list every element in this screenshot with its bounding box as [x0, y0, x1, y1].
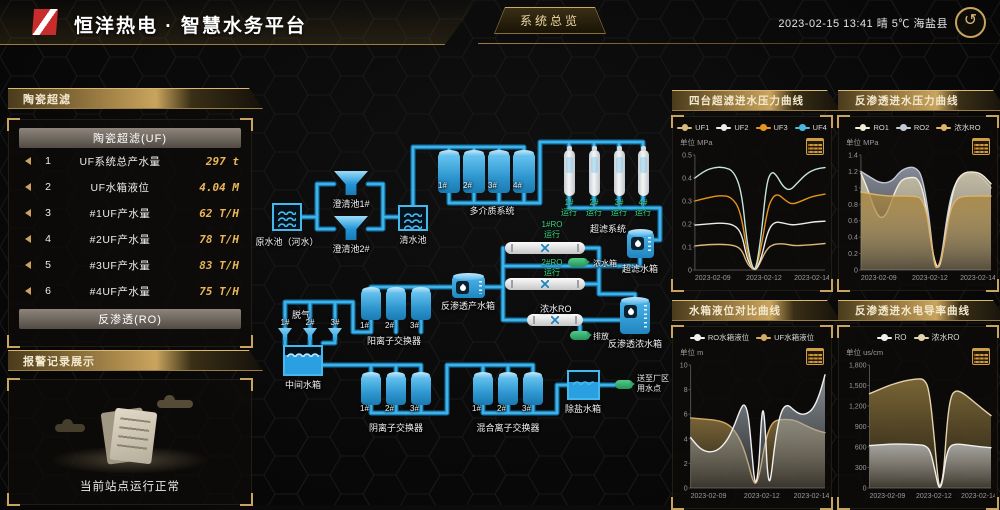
svg-text:0.8: 0.8	[848, 202, 858, 209]
svg-text:0.4: 0.4	[682, 176, 692, 183]
svg-text:0.2: 0.2	[848, 251, 858, 258]
svg-text:0.2: 0.2	[682, 222, 692, 229]
uf-water-tank	[627, 232, 654, 258]
alarm-box: 当前站点运行正常	[8, 379, 252, 505]
chart-plot: 10864202023-02-092023-02-122023-02-14	[675, 345, 829, 501]
chart-title: 反渗透进水压力曲线	[838, 90, 1000, 111]
raw-water-pool	[272, 203, 302, 231]
chart-legend: RO1RO2浓水RO	[841, 120, 995, 135]
svg-text:600: 600	[855, 445, 867, 452]
discharge-badge	[570, 331, 590, 340]
svg-text:2023-02-09: 2023-02-09	[691, 493, 727, 500]
anion-exchanger-1	[361, 375, 381, 405]
uf-panel-header: 陶瓷超滤	[8, 88, 263, 109]
svg-text:10: 10	[680, 363, 688, 370]
ro-section-title: 反渗透(RO)	[19, 309, 241, 329]
process-flow-diagram: 原水池（河水） 澄清池1# 澄清池2# 清水池 1# 2# 3# 4# 多介质系…	[255, 80, 675, 505]
anion-unit-label: 1#	[360, 404, 369, 413]
chart-box: RO1RO2浓水RO 单位 MPa 1.41.210.80.60.40.2020…	[838, 116, 998, 291]
location-text: 海盐县	[914, 18, 949, 30]
svg-text:0: 0	[688, 268, 692, 275]
legend-item: UF2	[716, 123, 748, 132]
alarm-panel: 报警记录展示 当前站点运行正常	[8, 350, 252, 505]
svg-text:2: 2	[684, 461, 688, 468]
system-overview-button[interactable]: 系统总览	[494, 7, 606, 34]
multimedia-system-label: 多介质系统	[469, 204, 514, 217]
row-value: 4.04 M	[179, 181, 241, 194]
calendar-icon[interactable]	[806, 138, 824, 155]
alarm-status-text: 当前站点运行正常	[9, 478, 251, 494]
cation-label: 阳离子交换器	[367, 334, 421, 347]
svg-text:0.6: 0.6	[848, 218, 858, 225]
degas-unit-label: 3#	[331, 318, 340, 327]
row-name: #1UF产水量	[61, 206, 179, 221]
uf-water-tank-label: 超滤水箱	[622, 262, 658, 275]
chart-unit-label: 单位 MPa	[846, 137, 879, 148]
svg-text:2023-02-12: 2023-02-12	[744, 493, 780, 500]
uf-panel: 陶瓷超滤 陶瓷超滤(UF) 1UF系统总产水量297 t2UF水箱液位4.04 …	[8, 88, 252, 347]
row-value: 62 T/H	[179, 207, 241, 220]
row-value: 78 T/H	[179, 233, 241, 246]
row-name: #2UF产水量	[61, 232, 179, 247]
chart-plot: 1,8001,5001,20090060030002023-02-092023-…	[841, 345, 995, 501]
header-gold-line	[478, 43, 1000, 44]
cation-unit-label: 2#	[385, 321, 394, 330]
demin-water-tank-label: 除盐水箱	[565, 402, 601, 415]
uf-table-title: 陶瓷超滤(UF)	[19, 128, 241, 148]
row-index: 6	[35, 285, 61, 297]
row-bullet-icon	[21, 183, 31, 191]
row-bullet-icon	[21, 287, 31, 295]
document-list-icon	[109, 408, 157, 465]
svg-text:0.1: 0.1	[682, 245, 692, 252]
discharge-badge-label: 排放	[593, 331, 609, 342]
clarifier-1-label: 澄清池1#	[332, 197, 369, 210]
mixed-exchanger-1	[473, 375, 493, 405]
row-name: #4UF产水量	[61, 284, 179, 299]
brand-logo-icon	[32, 9, 58, 35]
svg-text:1.4: 1.4	[848, 153, 858, 160]
uf-unit-status: 1# 运行	[560, 198, 578, 217]
legend-item: RO水箱液位	[690, 332, 749, 343]
degas-unit-label: 1#	[281, 318, 290, 327]
row-name: UF系统总产水量	[61, 154, 179, 169]
uf-unit-status: 3# 运行	[610, 198, 628, 217]
chart-unit-label: 单位 m	[680, 347, 703, 358]
ro1-status: 1#RO 运行	[537, 220, 567, 239]
mm-unit-label: 2#	[463, 181, 472, 190]
row-bullet-icon	[21, 209, 31, 217]
row-value: 75 T/H	[179, 285, 241, 298]
chart-plot: 1.41.210.80.60.40.202023-02-092023-02-12…	[841, 135, 995, 283]
ro-membrane-1	[505, 242, 585, 254]
cation-exchanger-1	[361, 290, 381, 320]
legend-item: RO1	[855, 123, 888, 132]
uf-column-3	[614, 150, 625, 196]
row-bullet-icon	[21, 157, 31, 165]
row-index: 4	[35, 233, 61, 245]
row-index: 2	[35, 181, 61, 193]
chart-box: RO浓水RO 单位 us/cm 1,8001,5001,200900600300…	[838, 326, 998, 509]
system-overview-label: 系统总览	[520, 12, 580, 29]
row-value: 297 t	[179, 155, 241, 168]
table-row: 5#3UF产水量83 T/H	[19, 252, 241, 278]
supply-badge-label: 送至厂区 用水点	[637, 374, 677, 394]
svg-text:300: 300	[855, 465, 867, 472]
svg-text:6: 6	[684, 412, 688, 419]
table-row: 6#4UF产水量75 T/H	[19, 278, 241, 304]
uf-column-2	[589, 150, 600, 196]
concentrate-ro-label: 浓水RO	[540, 302, 572, 315]
svg-text:2023-02-09: 2023-02-09	[861, 275, 897, 282]
alarm-panel-header: 报警记录展示	[8, 350, 263, 371]
app-title: 恒洋热电 · 智慧水务平台	[74, 11, 307, 38]
chart-legend: RO浓水RO	[841, 330, 995, 345]
ro-product-tank	[452, 276, 485, 298]
uf-column-4	[638, 150, 649, 196]
svg-text:1.2: 1.2	[848, 169, 858, 176]
svg-text:8: 8	[684, 387, 688, 394]
anion-unit-label: 3#	[410, 404, 419, 413]
datetime-weather: 2023-02-15 13:41 晴 5℃ 海盐县	[778, 15, 948, 31]
demin-water-tank	[567, 370, 600, 400]
legend-item: UF3	[756, 123, 788, 132]
ro2-status: 2#RO 运行	[537, 258, 567, 277]
concentrate-badge-label: 浓水箱	[593, 258, 617, 269]
cation-exchanger-2	[386, 290, 406, 320]
anion-exchanger-2	[386, 375, 406, 405]
chart-box: UF1UF2UF3UF4 单位 MPa 0.50.40.30.20.102023…	[672, 116, 832, 291]
mixed-unit-label: 3#	[522, 404, 531, 413]
svg-text:1,500: 1,500	[849, 383, 867, 390]
uf-unit-status: 4# 运行	[634, 198, 652, 217]
mixed-label: 混合离子交换器	[476, 421, 539, 434]
svg-text:2023-02-12: 2023-02-12	[746, 275, 782, 282]
mixed-exchanger-3	[523, 375, 543, 405]
svg-text:1,200: 1,200	[849, 404, 867, 411]
svg-text:1,800: 1,800	[849, 363, 867, 370]
row-index: 5	[35, 259, 61, 271]
anion-unit-label: 2#	[385, 404, 394, 413]
chart-unit-label: 单位 us/cm	[846, 347, 883, 358]
svg-text:2023-02-09: 2023-02-09	[695, 275, 731, 282]
row-bullet-icon	[21, 261, 31, 269]
calendar-icon[interactable]	[972, 138, 990, 155]
chart-legend: RO水箱液位UF水箱液位	[675, 330, 829, 345]
table-row: 3#1UF产水量62 T/H	[19, 200, 241, 226]
chart-legend: UF1UF2UF3UF4	[675, 120, 829, 135]
table-row: 2UF水箱液位4.04 M	[19, 174, 241, 200]
svg-text:4: 4	[684, 436, 688, 443]
row-name: #3UF产水量	[61, 258, 179, 273]
svg-text:0: 0	[684, 486, 688, 493]
mm-unit-label: 1#	[438, 181, 447, 190]
calendar-icon[interactable]	[806, 348, 824, 365]
svg-text:0: 0	[854, 268, 858, 275]
uf-column-1	[564, 150, 575, 196]
table-row: 1UF系统总产水量297 t	[19, 148, 241, 174]
row-index: 3	[35, 207, 61, 219]
legend-item: RO2	[896, 123, 929, 132]
raw-water-pool-label: 原水池（河水）	[255, 235, 318, 248]
back-icon[interactable]: ↺	[955, 7, 986, 38]
calendar-icon[interactable]	[972, 348, 990, 365]
ro-product-tank-label: 反渗透产水箱	[441, 299, 495, 312]
weather-text: 晴 5℃	[877, 18, 910, 30]
table-row: 4#2UF产水量78 T/H	[19, 226, 241, 252]
uf-unit-status: 2# 运行	[585, 198, 603, 217]
mm-unit-label: 4#	[513, 181, 522, 190]
mixed-unit-label: 2#	[497, 404, 506, 413]
ro-membrane-2	[505, 278, 585, 290]
anion-label: 阴离子交换器	[369, 421, 423, 434]
chart-panel-uf-pressure: 四台超滤进水压力曲线 UF1UF2UF3UF4 单位 MPa 0.50.40.3…	[672, 90, 832, 291]
chart-unit-label: 单位 MPa	[680, 137, 713, 148]
svg-text:1: 1	[854, 185, 858, 192]
svg-text:0.4: 0.4	[848, 235, 858, 242]
svg-text:0: 0	[863, 486, 867, 493]
concentrate-badge	[568, 258, 588, 267]
row-name: UF水箱液位	[61, 180, 179, 195]
mixed-unit-label: 1#	[472, 404, 481, 413]
mm-unit-label: 3#	[488, 181, 497, 190]
chart-panel-ro-pressure: 反渗透进水压力曲线 RO1RO2浓水RO 单位 MPa 1.41.210.80.…	[838, 90, 998, 291]
anion-exchanger-3	[411, 375, 431, 405]
concentrate-ro-membrane	[527, 314, 583, 326]
supply-badge	[615, 380, 633, 389]
chart-panel-conductivity: 反渗透进水电导率曲线 RO浓水RO 单位 us/cm 1,8001,5001,2…	[838, 300, 998, 509]
chart-box: RO水箱液位UF水箱液位 单位 m 10864202023-02-092023-…	[672, 326, 832, 509]
row-index: 1	[35, 155, 61, 167]
legend-item: UF水箱液位	[756, 332, 814, 343]
uf-table-rows: 1UF系统总产水量297 t2UF水箱液位4.04 M3#1UF产水量62 T/…	[19, 148, 241, 304]
chart-title: 四台超滤进水压力曲线	[672, 90, 841, 111]
svg-text:2023-02-12: 2023-02-12	[912, 275, 948, 282]
row-bullet-icon	[21, 235, 31, 243]
chart-plot: 0.50.40.30.20.102023-02-092023-02-122023…	[675, 135, 829, 283]
legend-item: RO	[877, 333, 907, 342]
clear-water-pool-label: 清水池	[399, 233, 426, 246]
intermediate-tank	[283, 345, 323, 376]
cation-unit-label: 3#	[410, 321, 419, 330]
uf-table-box: 陶瓷超滤(UF) 1UF系统总产水量297 t2UF水箱液位4.04 M3#1U…	[8, 119, 252, 347]
svg-text:2023-02-09: 2023-02-09	[870, 493, 906, 500]
svg-text:0.5: 0.5	[682, 153, 692, 160]
datetime-text: 2023-02-15 13:41	[778, 18, 873, 30]
svg-text:2023-02-12: 2023-02-12	[916, 493, 952, 500]
cation-unit-label: 1#	[360, 321, 369, 330]
degas-unit-label: 2#	[306, 318, 315, 327]
chart-panel-tank-level: 水箱液位对比曲线 RO水箱液位UF水箱液位 单位 m 10864202023-0…	[672, 300, 832, 509]
intermediate-tank-label: 中间水箱	[285, 378, 321, 391]
chart-title: 水箱液位对比曲线	[672, 300, 841, 321]
ro-concentrate-tank-label: 反渗透浓水箱	[608, 337, 662, 350]
mixed-exchanger-2	[498, 375, 518, 405]
clear-water-pool	[398, 205, 428, 231]
legend-item: 浓水RO	[936, 122, 980, 133]
uf-system-label: 超滤系统	[590, 222, 626, 235]
svg-text:0.3: 0.3	[682, 199, 692, 206]
chart-title: 反渗透进水电导率曲线	[838, 300, 1000, 321]
svg-text:900: 900	[855, 424, 867, 431]
ro-concentrate-tank	[620, 300, 650, 334]
legend-item: 浓水RO	[914, 332, 960, 343]
row-value: 83 T/H	[179, 259, 241, 272]
cation-exchanger-3	[411, 290, 431, 320]
cloud-icon	[55, 424, 85, 432]
cloud-icon	[157, 400, 193, 408]
clarifier-2-label: 澄清池2#	[332, 242, 369, 255]
